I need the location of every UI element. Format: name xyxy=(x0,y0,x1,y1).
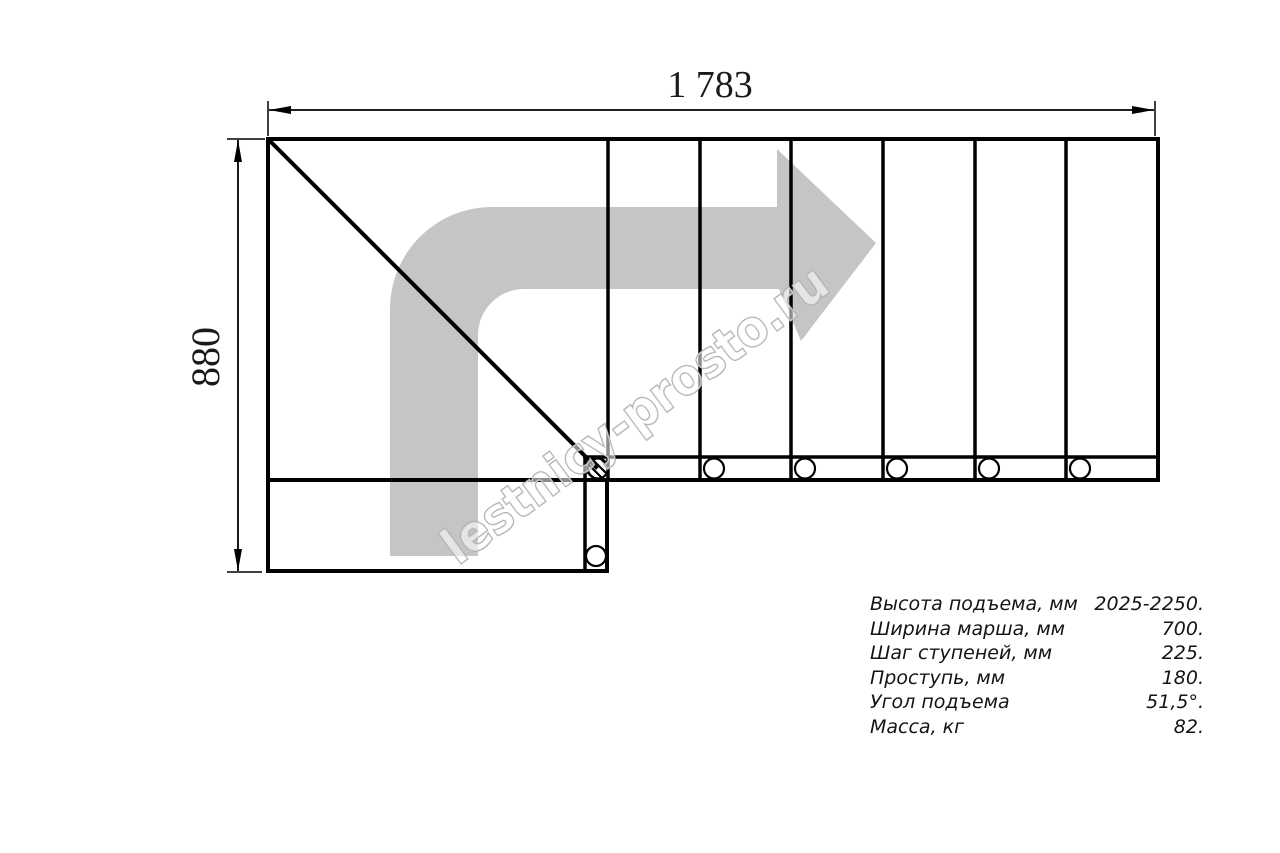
step-lines xyxy=(608,139,1066,480)
dim-arrow-down-icon xyxy=(234,549,242,571)
spec-label: Угол подъема xyxy=(870,690,1010,715)
spec-value: 180. xyxy=(1162,666,1204,691)
spec-value: 82. xyxy=(1174,715,1204,740)
spec-value: 51,5°. xyxy=(1146,690,1204,715)
dimension-width-label: 1 783 xyxy=(667,64,753,106)
spec-label: Масса, кг xyxy=(870,715,964,740)
fastener-circle xyxy=(795,459,815,479)
fastener-circle xyxy=(887,459,907,479)
fastener-circle xyxy=(1070,459,1090,479)
dimension-height: 880 xyxy=(183,139,265,572)
stair-drawing-page: 1 783 880 lestnicy-prosto.ru Высота подъ… xyxy=(0,0,1280,853)
fastener-circle xyxy=(704,459,724,479)
dim-arrow-right-icon xyxy=(1132,106,1154,114)
direction-arrow xyxy=(390,149,876,556)
dimension-width: 1 783 xyxy=(268,64,1155,136)
spec-row-angle: Угол подъема 51,5°. xyxy=(870,690,1204,715)
spec-value: 225. xyxy=(1162,641,1204,666)
dim-arrow-up-icon xyxy=(234,140,242,162)
dim-arrow-left-icon xyxy=(269,106,291,114)
spec-label: Ширина марша, мм xyxy=(870,617,1065,642)
spec-row-step-pitch: Шаг ступеней, мм 225. xyxy=(870,641,1204,666)
spec-label: Шаг ступеней, мм xyxy=(870,641,1052,666)
spec-value: 2025-2250. xyxy=(1094,592,1204,617)
specs-table: Высота подъема, мм 2025-2250. Ширина мар… xyxy=(870,592,1204,740)
spec-row-mass: Масса, кг 82. xyxy=(870,715,1204,740)
spec-row-height: Высота подъема, мм 2025-2250. xyxy=(870,592,1204,617)
spec-row-flight-width: Ширина марша, мм 700. xyxy=(870,617,1204,642)
spec-label: Высота подъема, мм xyxy=(870,592,1078,617)
spec-value: 700. xyxy=(1162,617,1204,642)
spec-row-tread: Проступь, мм 180. xyxy=(870,666,1204,691)
fastener-circle xyxy=(979,459,999,479)
spec-label: Проступь, мм xyxy=(870,666,1005,691)
fastener-circles xyxy=(586,459,1090,567)
dimension-height-label: 880 xyxy=(183,327,228,387)
fastener-circle xyxy=(586,546,606,566)
